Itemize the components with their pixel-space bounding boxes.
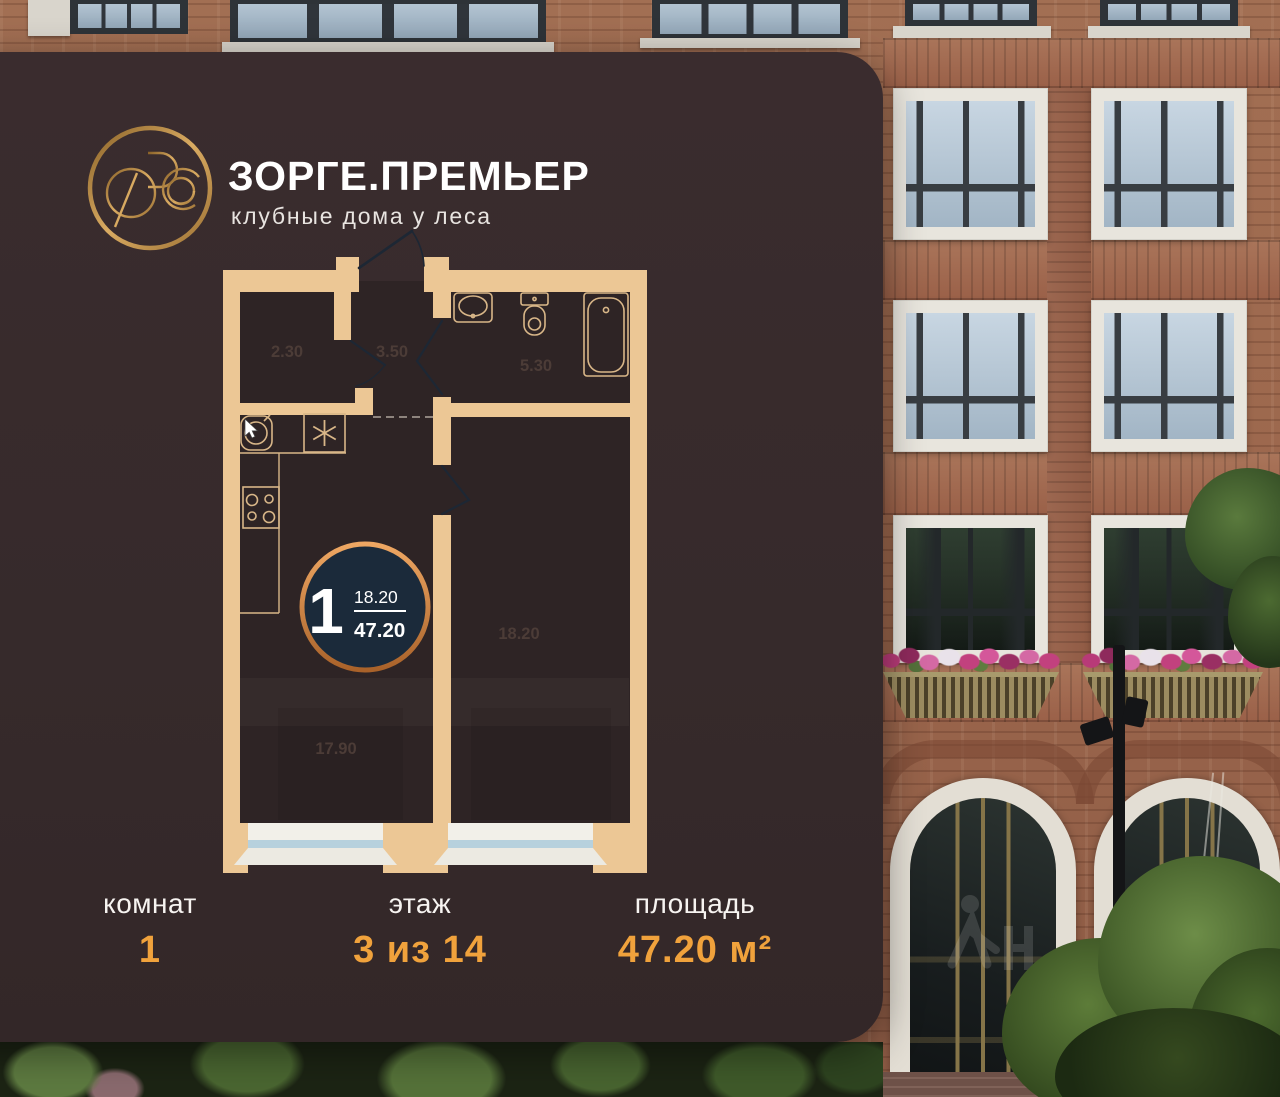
- summary-floor-value: 3 из 14: [290, 929, 550, 972]
- building-window: [652, 0, 848, 40]
- building-window: [1091, 300, 1247, 452]
- room-label-bedroom: 18.20: [498, 625, 539, 643]
- building-window: [905, 0, 1037, 26]
- badge-rooms-count: 1: [308, 575, 344, 647]
- window-glass: [906, 313, 1035, 439]
- room-label-hallway: 3.50: [376, 343, 408, 361]
- room-label-bathroom: 5.30: [520, 357, 552, 375]
- window-sill: [640, 38, 860, 48]
- window-glass: [906, 101, 1035, 227]
- listing-screenshot: ЗОРГЕ.ПРЕМЬЕР клубные дома у леса: [0, 0, 1280, 1097]
- building-window: [1091, 88, 1247, 240]
- brick-pilaster: [1047, 88, 1091, 663]
- building-window: [893, 300, 1048, 452]
- hedge-foliage: [0, 1042, 883, 1097]
- building-window: [70, 0, 188, 34]
- building-window: [230, 0, 546, 44]
- window-glass: [660, 4, 840, 34]
- summary-rooms-label: комнат: [30, 888, 270, 920]
- badge-total-area: 47.20: [354, 619, 405, 642]
- summary-rooms-value: 1: [30, 929, 270, 972]
- building-window: [1100, 0, 1238, 26]
- plan-window-left: [234, 823, 397, 865]
- plan-window-right: [434, 823, 607, 865]
- floor-plan: 2.30 3.50 5.30 17.90 18.20 1 18.20 47.20: [222, 205, 648, 875]
- window-sill: [28, 0, 70, 36]
- flower-box-flowers: [880, 642, 1062, 676]
- logo-monogram: [90, 128, 210, 248]
- building-window: [893, 515, 1048, 663]
- entrance-door-icon: [359, 231, 424, 268]
- summary-area: площадь 47.20 м²: [545, 888, 845, 972]
- window-glass: [1104, 101, 1234, 227]
- summary-area-label: площадь: [545, 888, 845, 920]
- badge-living-area: 18.20: [354, 587, 398, 607]
- area-badge: 1 18.20 47.20: [302, 544, 428, 670]
- summary-rooms: комнат 1: [30, 888, 270, 972]
- brand-logo-icon: [85, 121, 215, 255]
- window-sill: [893, 26, 1051, 38]
- room-label-closet: 2.30: [271, 343, 303, 361]
- window-glass: [1104, 313, 1234, 439]
- summary-floor: этаж 3 из 14: [290, 888, 550, 972]
- building-window: [893, 88, 1048, 240]
- window-glass: [1108, 4, 1230, 20]
- window-glass: [913, 4, 1029, 20]
- window-glass: [238, 4, 538, 38]
- window-glass: [906, 528, 1035, 650]
- brand-title: ЗОРГЕ.ПРЕМЬЕР: [228, 153, 788, 200]
- window-sill: [222, 42, 554, 52]
- window-glass: [78, 4, 180, 28]
- brick-band: [883, 38, 1280, 88]
- flower-box-basket: [1083, 672, 1263, 718]
- summary-floor-label: этаж: [290, 888, 550, 920]
- window-sill: [1088, 26, 1250, 38]
- flower-box-basket: [883, 672, 1059, 718]
- summary-area-value: 47.20 м²: [545, 929, 845, 972]
- room-label-kitchen-living: 17.90: [315, 740, 356, 758]
